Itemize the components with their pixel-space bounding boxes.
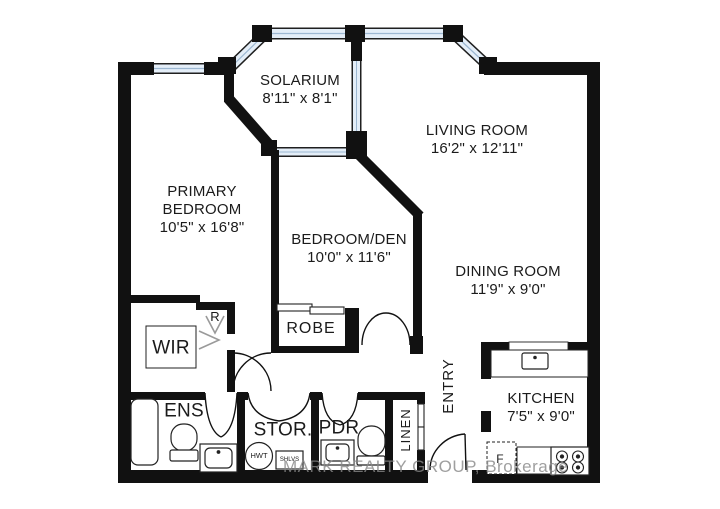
door-arc	[221, 393, 237, 437]
toilet-icon	[358, 426, 385, 456]
wall	[587, 62, 600, 483]
room-dims: 7'5" x 9'0"	[507, 408, 575, 426]
wall-diagonal	[359, 155, 420, 216]
wall	[271, 150, 279, 352]
room-dims: 10'5" x 16'8"	[146, 219, 258, 237]
wall-post	[443, 25, 463, 42]
room-dims: 16'2" x 12'11"	[426, 140, 528, 158]
floor-plan: SOLARIUM 8'11" x 8'1" LIVING ROOM 16'2" …	[0, 0, 720, 509]
door-arc	[248, 393, 279, 421]
room-label-pdr: PDR	[319, 419, 360, 438]
linen-door-icon	[418, 427, 424, 450]
room-label-wir: WIR	[152, 339, 190, 358]
faucet-icon	[534, 356, 536, 358]
wall	[118, 62, 131, 483]
wall	[118, 62, 154, 75]
door-arc	[205, 393, 221, 437]
bathtub-icon	[131, 399, 158, 465]
room-label-r-closet: R	[210, 308, 220, 326]
wall	[417, 392, 425, 404]
toilet-icon	[171, 424, 197, 451]
room-label-solarium: SOLARIUM 8'11" x 8'1"	[260, 72, 340, 108]
room-name: LIVING ROOM	[426, 122, 528, 140]
wall	[413, 213, 422, 338]
wall	[484, 62, 588, 75]
fixture-label-hwt: HWT	[250, 447, 267, 465]
wall	[237, 392, 245, 470]
room-label-ens: ENS	[164, 402, 204, 421]
faucet-icon	[217, 451, 220, 454]
door-arc	[279, 393, 310, 421]
room-label-primary-bedroom: PRIMARY BEDROOM 10'5" x 16'8"	[146, 183, 258, 237]
sink-icon	[522, 353, 548, 369]
room-name: KITCHEN	[507, 390, 575, 408]
wall-post	[479, 57, 497, 74]
wall	[118, 295, 200, 303]
room-name: SOLARIUM	[260, 72, 340, 90]
linen-door-icon	[418, 404, 424, 427]
sliding-door-icon	[277, 304, 312, 311]
toilet-tank-icon	[170, 450, 198, 461]
wall	[227, 302, 235, 334]
brokerage-watermark: MARK REALTY GROUP, Brokerage	[283, 457, 568, 477]
room-dims: 10'0" x 11'6"	[291, 249, 407, 267]
room-name: PRIMARY BEDROOM	[146, 183, 258, 219]
room-label-stor: STOR.	[254, 421, 313, 440]
sliding-door-icon	[310, 307, 344, 314]
wall	[271, 346, 359, 353]
room-label-linen: LINEN	[397, 408, 415, 451]
room-dims: 8'11" x 8'1"	[260, 90, 340, 108]
wall-post	[345, 25, 365, 42]
double-door-arc	[362, 313, 386, 345]
faucet-icon	[336, 447, 338, 449]
room-dims: 11'9" x 9'0"	[455, 281, 561, 299]
room-name: BEDROOM/DEN	[291, 231, 407, 249]
room-label-living-room: LIVING ROOM 16'2" x 12'11"	[426, 122, 528, 158]
wall	[568, 342, 587, 350]
wall	[410, 336, 423, 354]
bifold-door-icon	[199, 331, 219, 349]
room-label-robe: ROBE	[286, 320, 335, 338]
wall-post	[252, 25, 272, 42]
wall-post	[351, 40, 362, 61]
room-label-bedroom-den: BEDROOM/DEN 10'0" x 11'6"	[291, 231, 407, 267]
room-label-entry: ENTRY	[440, 358, 458, 414]
wall	[481, 411, 491, 432]
double-door-arc	[386, 313, 410, 345]
wall	[481, 342, 509, 350]
room-name: DINING ROOM	[455, 263, 561, 281]
room-label-kitchen: KITCHEN 7'5" x 9'0"	[507, 390, 575, 426]
room-label-dining-room: DINING ROOM 11'9" x 9'0"	[455, 263, 561, 299]
